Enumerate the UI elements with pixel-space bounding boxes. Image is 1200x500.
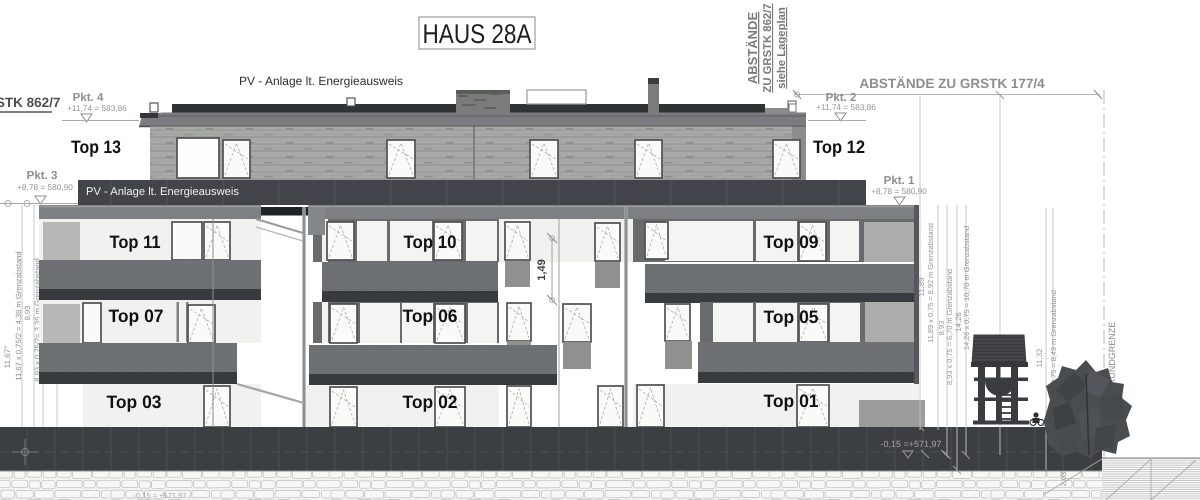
svg-text:8,93 x 0,75 = 6,70 m Grenzabst: 8,93 x 0,75 = 6,70 m Grenzabstand [945, 269, 954, 385]
svg-text:Pkt. 3: Pkt. 3 [27, 170, 58, 182]
svg-text:2,03: 2,03 [1059, 472, 1068, 486]
svg-text:Top 06: Top 06 [403, 306, 458, 326]
svg-text:14,26 x 0,75 = 10,70 m Grenzab: 14,26 x 0,75 = 10,70 m Grenzabstand [962, 226, 971, 350]
svg-text:11,67 x 0,75/2 = 4,38 m Grenza: 11,67 x 0,75/2 = 4,38 m Grenzabstand [14, 251, 23, 380]
svg-text:+11,74 = 583,86: +11,74 = 583,86 [67, 103, 127, 113]
svg-text:Top 11: Top 11 [110, 232, 161, 252]
svg-text:8,93: 8,93 [23, 306, 32, 321]
svg-text:1,49: 1,49 [536, 259, 548, 280]
svg-text:-0,15 =+571,97: -0,15 =+571,97 [880, 439, 941, 449]
svg-text:Top 01: Top 01 [764, 391, 819, 411]
svg-text:11,89: 11,89 [917, 278, 926, 297]
svg-text:Top 09: Top 09 [764, 232, 819, 252]
svg-text:11,67°: 11,67° [3, 346, 12, 369]
svg-text:11,89 x 0,75 = 8,92 m Grenzabs: 11,89 x 0,75 = 8,92 m Grenzabstand [926, 223, 935, 343]
svg-text:Top 07: Top 07 [109, 306, 164, 326]
svg-text:ABSTÄNDE ZU GRSTK 177/4: ABSTÄNDE ZU GRSTK 177/4 [859, 76, 1045, 91]
svg-text:+8,78 = 580,90: +8,78 = 580,90 [17, 182, 73, 192]
svg-text:GRSTK 862/7: GRSTK 862/7 [0, 95, 60, 110]
svg-text:siehe Lageplan: siehe Lageplan [776, 7, 788, 89]
svg-text:11,32: 11,32 [1035, 349, 1044, 368]
svg-text:Top 02: Top 02 [403, 392, 458, 412]
svg-text:ABSTÄNDE: ABSTÄNDE [745, 12, 760, 85]
svg-text:PV - Anlage lt. Energieausweis: PV - Anlage lt. Energieausweis [86, 186, 239, 198]
svg-text:+11,74 = 583,86: +11,74 = 583,86 [816, 102, 876, 112]
svg-text:ZU GRSTK 862/7: ZU GRSTK 862/7 [762, 3, 774, 92]
svg-text:Top 05: Top 05 [764, 307, 819, 327]
svg-text:+8,78 = 580,90: +8,78 = 580,90 [871, 186, 927, 196]
svg-text:Top 13: Top 13 [71, 137, 121, 157]
svg-text:HAUS 28A: HAUS 28A [423, 19, 532, 49]
svg-text:Top 03: Top 03 [107, 392, 162, 412]
svg-text:PV - Anlage lt. Energieausweis: PV - Anlage lt. Energieausweis [239, 74, 403, 88]
svg-text:-0,15 = +571,97: -0,15 = +571,97 [134, 491, 187, 500]
svg-text:Top 10: Top 10 [404, 232, 457, 252]
svg-text:Top 12: Top 12 [813, 137, 865, 157]
